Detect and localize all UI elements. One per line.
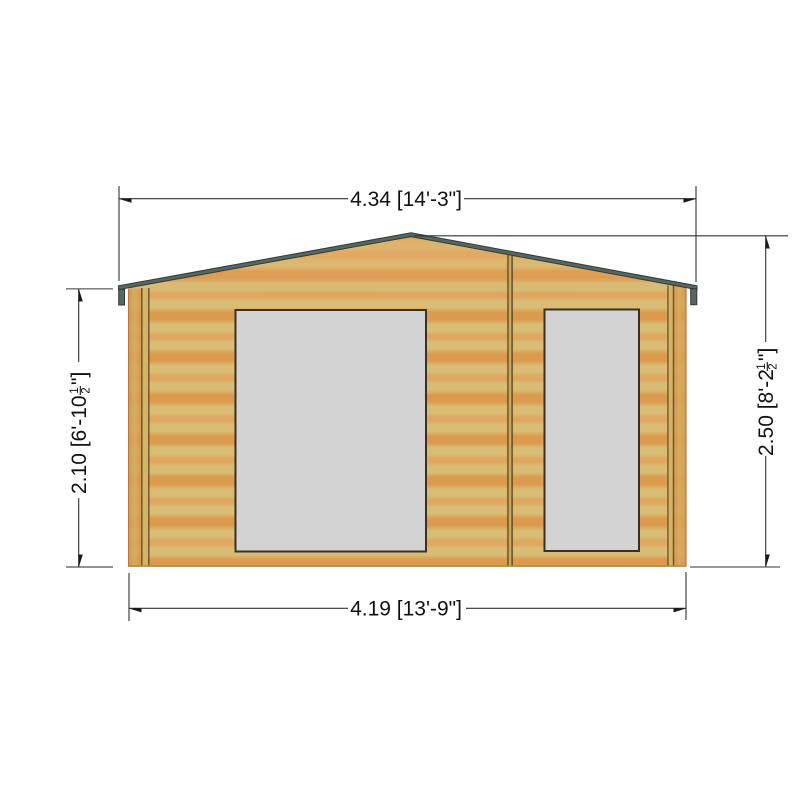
svg-text:1: 1	[69, 387, 81, 393]
svg-text:4.34 [14'-3"]: 4.34 [14'-3"]	[350, 188, 462, 211]
svg-text:2: 2	[81, 387, 93, 393]
svg-text:"]: "]	[68, 372, 91, 385]
svg-text:2.50 [8'-2: 2.50 [8'-2	[755, 369, 778, 456]
svg-text:2.10 [6'-10: 2.10 [6'-10	[68, 395, 91, 494]
svg-text:1: 1	[756, 363, 768, 369]
svg-text:2: 2	[768, 363, 780, 369]
svg-text:4.19 [13'-9"]: 4.19 [13'-9"]	[350, 598, 462, 621]
svg-text:"]: "]	[755, 348, 778, 361]
